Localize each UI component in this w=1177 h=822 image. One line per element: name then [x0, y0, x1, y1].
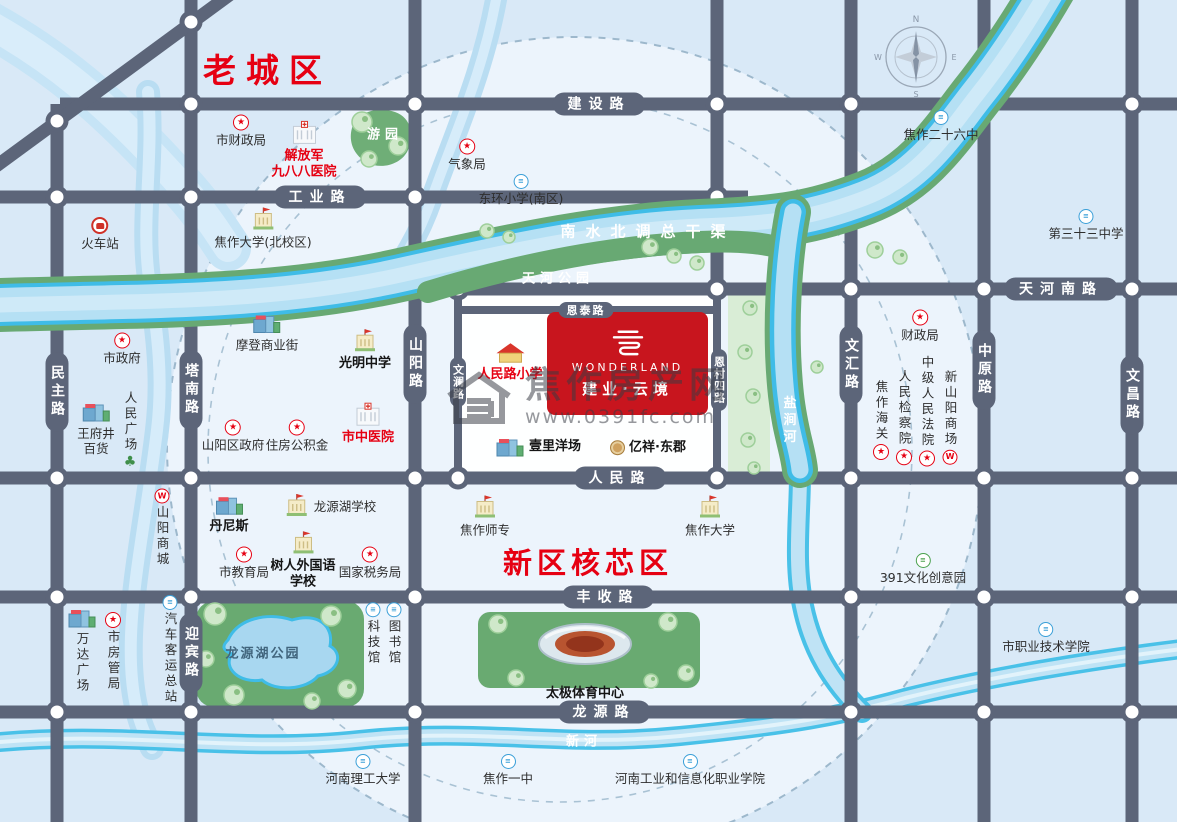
commercial-building-icon: [495, 435, 525, 459]
poi-label: 焦作一中: [483, 771, 533, 786]
school-badge-icon: ≡: [1078, 209, 1093, 224]
poi-bus-terminal: ≡汽车客运总站: [163, 595, 178, 705]
poi-shanyang-mall: W山阳商城: [155, 489, 170, 568]
star-icon: ★: [114, 333, 130, 349]
poi-guangming-middle: 光明中学: [339, 328, 391, 372]
poi-no33-middle-school: ≡第三十三中学: [1048, 209, 1123, 241]
river-label-south-north-water-canal: 南水北调总干渠: [560, 221, 735, 242]
poi-label: 太极体育中心: [546, 686, 624, 702]
poi-label: 中级人民法院: [920, 356, 935, 449]
poi-donghuan-primary-south: ≡东环小学(南区): [479, 174, 564, 206]
road-label-shanyang-road: 山阳路: [404, 324, 427, 404]
school-building-icon: [284, 493, 310, 519]
star-icon: ★: [912, 310, 928, 326]
poi-pla-988-hospital: 解放军九八八医院: [271, 120, 336, 179]
commercial-building-icon: [252, 312, 282, 336]
commercial-building-icon: [214, 493, 244, 517]
river-label-xin-river: 新河: [566, 731, 602, 750]
poi-jiaozuo-no1-middle: ≡焦作一中: [483, 754, 533, 786]
road-label-renmin-road: 人民路: [574, 467, 667, 490]
wonderland-logo-icon: [604, 328, 652, 356]
location-map: N S W E WONDERLAND 建业·云境 焦作房产网 www.0: [0, 0, 1177, 822]
road-label-wenhui-road: 文汇路: [840, 325, 863, 405]
river-label-yanjian-river: 盐涧河: [779, 396, 798, 447]
road-label-gongye-road: 工业路: [274, 186, 367, 209]
poi-label: 河南理工大学: [325, 771, 400, 786]
school-building-icon: [352, 328, 378, 354]
region-label-new-core: 新区核芯区: [503, 540, 673, 582]
star-icon: ★: [105, 612, 121, 628]
estate-logo-icon: [610, 441, 625, 456]
poi-label: 财政局: [901, 328, 939, 343]
school-building-icon: [697, 495, 723, 521]
riverside-green-strip: [728, 292, 770, 478]
poi-jiaozuo-normal-college: 焦作师专: [460, 495, 510, 538]
star-icon: ★: [362, 547, 378, 563]
school-building-icon: [250, 207, 276, 233]
poi-label: 火车站: [81, 236, 119, 251]
poi-label: 气象局: [448, 157, 486, 172]
road-label-tianhe-south-road: 天河南路: [1004, 278, 1118, 301]
star-icon: ★: [919, 451, 935, 467]
poi-library: ≡图书馆: [387, 602, 402, 666]
poi-yixiang-dongjun: 亿祥·东郡: [610, 440, 686, 456]
poi-henan-industry-info-college: ≡河南工业和信息化职业学院: [615, 754, 765, 786]
river-label-longyuanhu-park: 龙源湖公园: [225, 643, 300, 662]
poi-label: 壹里洋场: [529, 439, 581, 455]
poi-label: 龙源湖学校: [314, 499, 377, 514]
poi-wangfujing-dept-store: 王府井百货: [77, 400, 115, 456]
poi-label: 391文化创意园: [880, 570, 966, 585]
watermark-logo-icon: [443, 369, 515, 427]
poi-label: 市财政局: [216, 133, 266, 148]
poi-dennis: 丹尼斯: [209, 493, 248, 535]
road-label-yingbin-road: 迎宾路: [180, 613, 203, 693]
river-label-youyuan-garden: 游园: [367, 124, 403, 143]
poi-label: 科技馆: [366, 619, 381, 666]
road-label-entai-road: 恩泰路: [559, 302, 614, 318]
mall-badge-icon: W: [943, 449, 958, 464]
road-label-jianshe-road: 建设路: [553, 93, 646, 116]
poi-label: 东环小学(南区): [479, 191, 564, 206]
poi-label: 市教育局: [219, 565, 269, 580]
poi-science-museum: ≡科技馆: [366, 602, 381, 666]
poi-weather-bureau: ★气象局: [448, 139, 486, 172]
star-icon: ★: [459, 139, 475, 155]
poi-label: 王府井百货: [77, 426, 115, 456]
poi-jiaozuo-customs: 焦作海关★: [873, 380, 889, 460]
taiji-stadium: [539, 624, 631, 664]
poi-label: 光明中学: [339, 356, 391, 372]
poi-label: 人民检察院: [897, 369, 912, 447]
compass-e: E: [951, 53, 956, 62]
poi-label: 山阳商城: [155, 506, 170, 568]
school-badge-icon: ≡: [513, 174, 528, 189]
poi-longyuanhu-school: 龙源湖学校: [284, 493, 377, 519]
poi-railway-station: 火车站: [81, 217, 119, 251]
poi-jiaozuo-no26-middle: ≡焦作二十六中: [903, 110, 978, 142]
poi-label: 国家税务局: [339, 565, 402, 580]
poi-culture-creative-park-391: ≡391文化创意园: [880, 553, 966, 585]
poi-label: 亿祥·东郡: [629, 440, 686, 456]
railway-station-icon: [91, 217, 108, 234]
poi-label: 住房公积金: [266, 438, 329, 453]
road-label-wenchang-road: 文昌路: [1121, 355, 1144, 435]
poi-intermediate-peoples-court: 中级人民法院★: [919, 356, 935, 467]
road-label-minzhu-road: 民主路: [46, 352, 69, 432]
poi-national-tax-bureau: ★国家税务局: [339, 547, 402, 580]
poi-label: 解放军九八八医院: [271, 148, 336, 179]
poi-label: 丹尼斯: [209, 519, 248, 535]
star-icon: ★: [225, 420, 241, 436]
watermark-title: 焦作房产网: [525, 368, 730, 404]
poi-label: 焦作海关: [874, 380, 889, 442]
compass-w: W: [874, 53, 882, 62]
poi-label: 图书馆: [387, 619, 402, 666]
poi-shanyang-district-govt: ★山阳区政府: [202, 420, 265, 453]
poi-city-education-bureau: ★市教育局: [219, 547, 269, 580]
poi-city-tcm-hospital: 市中医院: [342, 402, 394, 446]
region-label-old-town: 老城区: [203, 44, 332, 92]
poi-housing-provident-fund: ★住房公积金: [266, 420, 329, 453]
road-label-longyuan-road: 龙源路: [558, 701, 651, 724]
poi-label: 市中医院: [342, 430, 394, 446]
park-badge-icon: ≡: [915, 553, 930, 568]
hospital-building-icon: [354, 402, 382, 428]
poi-city-housing-bureau: ★市房管局: [105, 612, 121, 692]
school-badge-icon: ≡: [355, 754, 370, 769]
civic-badge-icon: ≡: [163, 595, 178, 610]
poi-label: 山阳区政府: [202, 438, 265, 453]
poi-jiaozuo-univ-north-campus: 焦作大学(北校区): [214, 207, 311, 250]
river-label-tianhe-park: 天河公园: [522, 268, 594, 287]
poi-city-vocational-tech-college: ≡市职业技术学院: [1002, 622, 1090, 654]
poi-new-shanyang-mall: 新山阳商场W: [943, 370, 958, 465]
poi-label: 树人外国语学校: [270, 558, 335, 589]
school-badge-icon: ≡: [1038, 622, 1053, 637]
watermark: 焦作房产网 www.0391fc.com: [443, 368, 730, 427]
poi-label: 人民广场: [123, 391, 138, 453]
poi-finance-bureau: ★财政局: [901, 310, 939, 343]
star-icon: ★: [236, 547, 252, 563]
redroof-school-icon: [495, 341, 525, 365]
compass-n: N: [913, 15, 920, 25]
poi-label: 汽车客运总站: [163, 612, 178, 705]
star-icon: ★: [873, 444, 889, 460]
poi-label: 焦作大学(北校区): [214, 235, 311, 250]
civic-badge-icon: ≡: [387, 602, 402, 617]
hospital-building-icon: [290, 120, 318, 146]
poi-taiji-sports-center: 太极体育中心: [546, 686, 624, 702]
star-icon: ★: [233, 115, 249, 131]
school-badge-icon: ≡: [500, 754, 515, 769]
school-badge-icon: ≡: [933, 110, 948, 125]
tree-icon: ♣: [124, 455, 137, 469]
school-badge-icon: ≡: [682, 754, 697, 769]
compass-s: S: [913, 90, 918, 99]
poi-wanda-plaza: 万达广场: [67, 606, 97, 694]
poi-modern-commercial-street: 摩登商业街: [236, 312, 299, 353]
star-icon: ★: [289, 420, 305, 436]
poi-label: 河南工业和信息化职业学院: [615, 771, 765, 786]
poi-label: 焦作二十六中: [903, 127, 978, 142]
commercial-building-icon: [67, 606, 97, 630]
school-building-icon: [290, 530, 316, 556]
poi-renmin-square: 人民广场♣: [123, 391, 138, 469]
school-building-icon: [472, 495, 498, 521]
commercial-building-icon: [81, 400, 111, 424]
road-label-fengshou-road: 丰收路: [562, 586, 655, 609]
poi-shuren-foreign-language-school: 树人外国语学校: [270, 530, 335, 589]
poi-label: 市职业技术学院: [1002, 639, 1090, 654]
watermark-url: www.0391fc.com: [525, 408, 730, 427]
poi-city-finance-bureau-north: ★市财政局: [216, 115, 266, 148]
poi-henan-polytechnic-univ: ≡河南理工大学: [325, 754, 400, 786]
poi-yili-yangchang: 壹里洋场: [495, 435, 581, 459]
poi-label: 第三十三中学: [1048, 226, 1123, 241]
poi-jiaozuo-university: 焦作大学: [685, 495, 735, 538]
poi-label: 焦作大学: [685, 523, 735, 538]
poi-label: 市政府: [103, 351, 141, 366]
poi-label: 摩登商业街: [236, 338, 299, 353]
poi-label: 市房管局: [106, 630, 121, 692]
poi-label: 万达广场: [75, 632, 90, 694]
poi-city-government: ★市政府: [103, 333, 141, 366]
poi-label: 新山阳商场: [943, 370, 958, 448]
poi-peoples-procuratorate: 人民检察院★: [896, 369, 912, 465]
mall-badge-icon: W: [155, 489, 170, 504]
road-label-tanan-road: 塔南路: [180, 350, 203, 430]
star-icon: ★: [896, 449, 912, 465]
civic-badge-icon: ≡: [366, 602, 381, 617]
road-label-zhongyuan-road: 中原路: [973, 330, 996, 410]
poi-label: 焦作师专: [460, 523, 510, 538]
